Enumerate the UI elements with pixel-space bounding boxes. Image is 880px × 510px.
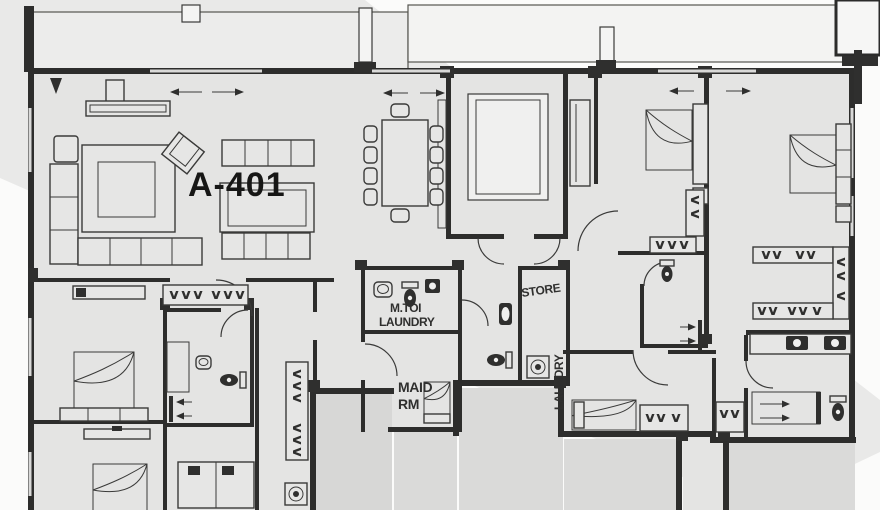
wall-segment	[255, 308, 259, 510]
entry-foyer	[468, 94, 548, 200]
wall-segment	[446, 72, 451, 239]
dining-chair	[364, 168, 377, 184]
sink-icon	[196, 356, 211, 369]
wardrobe-nook	[716, 402, 744, 432]
corridor-storage	[285, 362, 308, 505]
washer-center	[535, 364, 541, 370]
balcony-column	[359, 8, 372, 62]
dining-chair	[364, 126, 377, 142]
wall-segment	[710, 437, 856, 443]
balcony-left	[30, 12, 408, 70]
closet-rail	[833, 247, 849, 319]
store-room	[527, 356, 549, 378]
window	[372, 70, 450, 73]
nightstand	[836, 206, 851, 222]
shower-bar	[169, 396, 173, 422]
wall-segment	[676, 437, 682, 510]
wall-accent	[854, 50, 862, 104]
wall-segment	[458, 266, 462, 432]
sink-basin	[502, 307, 510, 321]
dining-table	[382, 120, 428, 206]
wall-segment	[163, 308, 221, 312]
toilet-dot	[494, 358, 498, 362]
wall-segment	[668, 350, 716, 354]
dining-chair	[430, 147, 443, 163]
sink-basin	[831, 339, 839, 347]
shower-bar	[698, 320, 702, 350]
dining-chair	[364, 147, 377, 163]
lift-shaft	[468, 94, 548, 200]
wall-segment	[453, 380, 565, 386]
wall-segment	[744, 335, 748, 361]
parapet-wall-end	[24, 6, 34, 72]
wall-segment	[563, 350, 633, 354]
shower-bar	[816, 392, 821, 424]
wall-segment	[558, 431, 716, 437]
wall-segment	[534, 234, 568, 239]
laundry-chute-label: LAUNDRY	[552, 354, 566, 410]
wall-segment	[640, 344, 708, 348]
floor-plan-page: A-401 M.TOI LAUNDRY STORE LAUNDRY MAID R…	[0, 0, 880, 510]
toilet-tank	[402, 282, 418, 288]
wall-accent	[452, 260, 464, 270]
wall-segment	[163, 308, 167, 427]
wall-accent	[28, 268, 38, 282]
floor-plan-drawing: A-401 M.TOI LAUNDRY STORE LAUNDRY MAID R…	[0, 0, 880, 510]
dining-chair	[391, 209, 409, 222]
outside-floor	[564, 439, 678, 510]
dining-chair	[430, 168, 443, 184]
wall-segment	[723, 437, 729, 510]
toilet-tank	[506, 352, 512, 368]
wall-accent	[596, 60, 616, 70]
wall-segment	[594, 72, 598, 184]
water-heater-dot	[429, 283, 436, 290]
sink-basin	[793, 339, 801, 347]
wall-segment	[640, 284, 644, 348]
wall-segment	[446, 234, 504, 239]
wall-accent	[558, 260, 570, 270]
wall-accent	[676, 431, 688, 441]
toilet-dot	[227, 378, 231, 382]
toilet-tank	[830, 396, 846, 402]
wall-segment	[163, 427, 167, 510]
washer-center	[293, 491, 299, 497]
window	[29, 318, 32, 376]
wall-segment	[361, 330, 462, 334]
balcony-right	[408, 5, 873, 62]
maid-toilet-label: M.TOI	[390, 301, 421, 315]
rug	[82, 145, 175, 232]
bed-headboard	[60, 408, 148, 421]
toilet-dot	[408, 296, 412, 300]
balcony-column	[182, 5, 200, 22]
wall-segment	[563, 72, 568, 239]
bed-headboard	[836, 124, 851, 204]
window	[658, 70, 756, 73]
dining-chair	[364, 189, 377, 205]
dining-chair	[391, 104, 409, 117]
wall-accent	[355, 260, 367, 270]
wall-segment	[250, 308, 254, 427]
console-knob	[76, 288, 86, 297]
wall-segment	[246, 278, 334, 282]
armchair	[54, 136, 78, 162]
wall-segment	[566, 266, 570, 386]
wall-segment	[28, 278, 170, 282]
toilet-tank	[240, 372, 246, 388]
wall-segment	[313, 280, 317, 312]
wall-pilaster	[106, 80, 124, 102]
wall-segment	[518, 266, 522, 386]
bed-headboard	[693, 104, 708, 184]
window	[29, 452, 32, 496]
wall-segment	[163, 423, 254, 427]
bed-pillow	[574, 402, 584, 428]
tv-console	[86, 101, 170, 116]
bed-base	[424, 414, 450, 423]
toilet-dot	[665, 272, 669, 276]
core-shaft	[316, 392, 392, 510]
toilet-tank	[660, 260, 674, 266]
console-knob	[112, 426, 122, 431]
balcony-column	[600, 27, 614, 63]
dining-chair	[430, 189, 443, 205]
outside-floor	[729, 443, 855, 510]
wall-segment	[310, 388, 394, 394]
wall-segment	[361, 380, 365, 432]
window	[150, 70, 262, 73]
outside-floor	[459, 388, 563, 510]
maid-room-label-1: MAID	[398, 379, 432, 395]
wall-segment	[310, 388, 316, 510]
maid-room-label-2: RM	[398, 396, 419, 412]
wall-segment	[361, 266, 462, 270]
window	[29, 108, 32, 172]
wardrobe-tall	[570, 100, 590, 186]
wall-segment	[388, 427, 460, 432]
dining-chair	[430, 126, 443, 142]
outside-floor	[394, 430, 457, 510]
wardrobe-knob	[188, 466, 200, 475]
roof-notch	[836, 0, 880, 55]
sofa-left	[50, 164, 78, 264]
laundry-label: LAUNDRY	[379, 315, 435, 329]
toilet-dot	[836, 410, 840, 414]
sofa-bottom	[78, 238, 202, 265]
wardrobe-knob	[222, 466, 234, 475]
unit-label: A-401	[188, 166, 286, 204]
